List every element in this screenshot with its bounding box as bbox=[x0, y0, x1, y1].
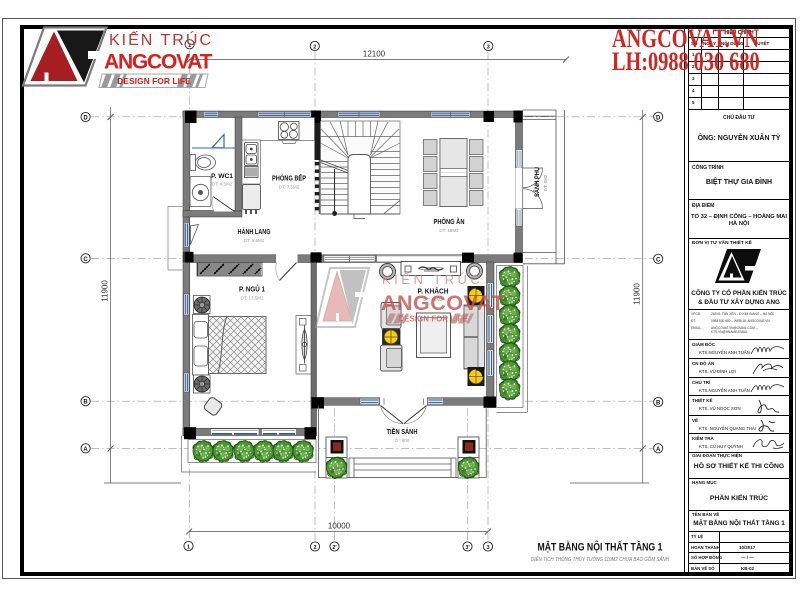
svg-text:P. WC1: P. WC1 bbox=[211, 173, 233, 180]
svg-text:SẢNH PHỤ: SẢNH PHỤ bbox=[532, 167, 541, 197]
svg-text:B: B bbox=[83, 400, 88, 406]
svg-text:2: 2 bbox=[313, 45, 316, 51]
svg-text:D: D bbox=[656, 115, 661, 121]
svg-text:DT: 18M2: DT: 18M2 bbox=[439, 228, 459, 233]
svg-text:KIẾN TRÚC: KIẾN TRÚC bbox=[109, 30, 213, 49]
svg-text:3: 3 bbox=[486, 545, 489, 551]
svg-text:DT: 4,5M2: DT: 4,5M2 bbox=[212, 182, 233, 187]
svg-text:C: C bbox=[83, 257, 88, 263]
svg-text:PHÒNG ĂN: PHÒNG ĂN bbox=[434, 217, 465, 226]
svg-text:KIẾN TRÚC: KIẾN TRÚC bbox=[382, 272, 483, 287]
svg-text:2: 2 bbox=[313, 545, 316, 551]
svg-text:MẶT BẰNG NỘI THẤT TẦNG 1: MẶT BẰNG NỘI THẤT TẦNG 1 bbox=[538, 541, 663, 554]
svg-text:B: B bbox=[656, 401, 661, 407]
svg-text:ANGCOVAT: ANGCOVAT bbox=[381, 291, 505, 315]
svg-text:DT: 7,5M2: DT: 7,5M2 bbox=[279, 185, 300, 190]
svg-text:A: A bbox=[656, 447, 661, 453]
svg-text:2': 2' bbox=[332, 545, 337, 551]
svg-text:DESIGN FOR LIFE: DESIGN FOR LIFE bbox=[117, 76, 191, 86]
svg-text:11900: 11900 bbox=[101, 280, 110, 302]
svg-text:10000: 10000 bbox=[328, 522, 351, 531]
svg-text:1: 1 bbox=[187, 545, 190, 551]
svg-text:3': 3' bbox=[465, 545, 470, 551]
svg-text:DT: 6M2: DT: 6M2 bbox=[543, 174, 548, 191]
svg-text:DT: 5,5M2: DT: 5,5M2 bbox=[244, 238, 265, 243]
svg-text:Ô : 900: Ô : 900 bbox=[395, 437, 410, 443]
svg-text:DESIGN FOR LIFE: DESIGN FOR LIFE bbox=[398, 315, 468, 324]
svg-text:DT: 13,5M2: DT: 13,5M2 bbox=[240, 296, 264, 301]
svg-text:HÀNH LANG: HÀNH LANG bbox=[238, 227, 271, 236]
svg-text:DIỆN TÍCH THÔNG THỦY TƯỜNG 110: DIỆN TÍCH THÔNG THỦY TƯỜNG 110M2 CHƯA BA… bbox=[531, 555, 669, 563]
svg-text:ANGCOVAT: ANGCOVAT bbox=[104, 51, 213, 74]
svg-text:11900: 11900 bbox=[633, 283, 642, 305]
svg-text:C: C bbox=[656, 257, 661, 263]
svg-text:3: 3 bbox=[487, 45, 490, 51]
svg-text:A: A bbox=[83, 447, 88, 453]
svg-text:P. NGỦ 1: P. NGỦ 1 bbox=[239, 285, 265, 294]
svg-text:12100: 12100 bbox=[363, 50, 386, 59]
svg-text:D: D bbox=[83, 116, 88, 122]
